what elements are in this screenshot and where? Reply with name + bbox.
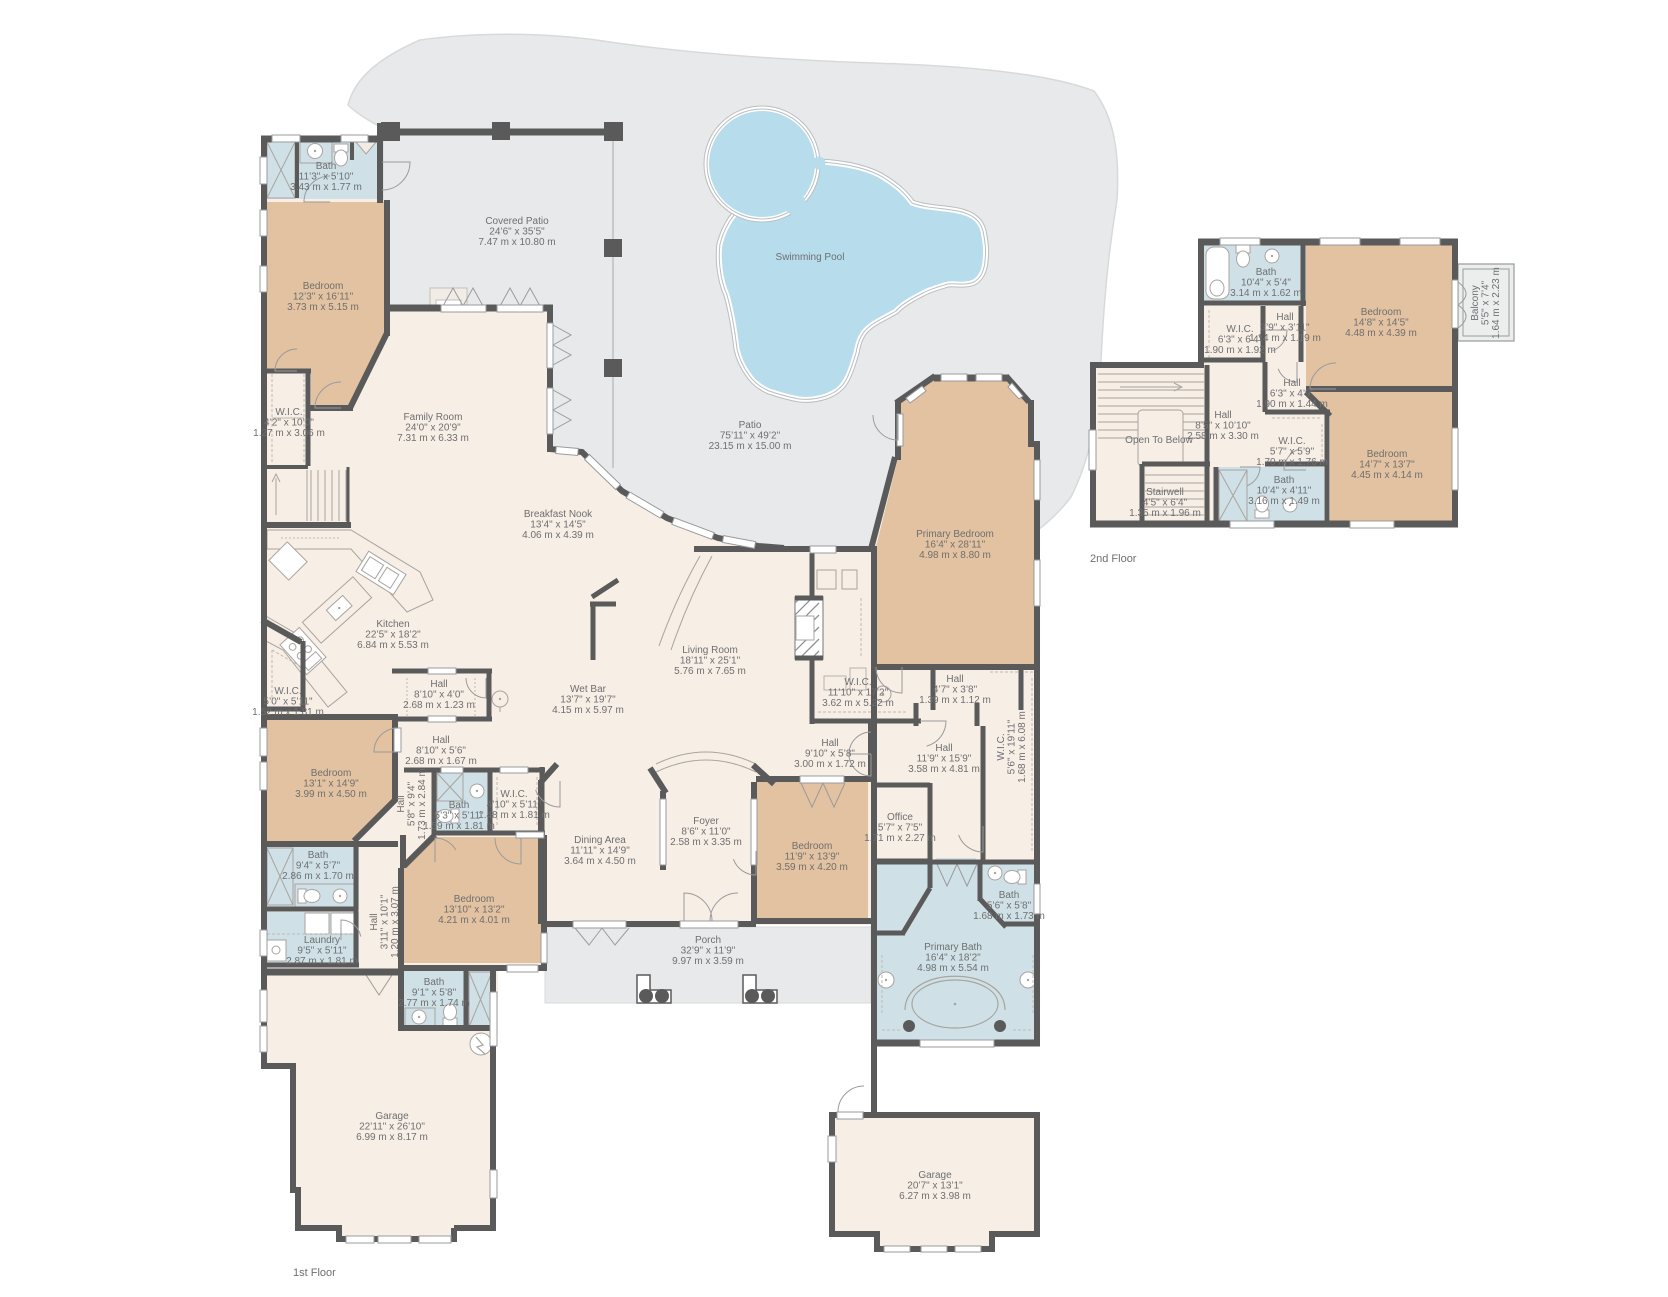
svg-text:8’10" x 4’0": 8’10" x 4’0" <box>414 690 464 701</box>
svg-text:Laundry: Laundry <box>304 935 340 946</box>
svg-text:1.70 m x 1.76 m: 1.70 m x 1.76 m <box>1256 457 1328 468</box>
svg-text:Bath: Bath <box>424 977 445 988</box>
svg-text:1.27 m x 3.06 m: 1.27 m x 3.06 m <box>253 428 325 439</box>
svg-text:3.99 m x 4.50 m: 3.99 m x 4.50 m <box>295 789 367 800</box>
svg-text:1.68 m x 1.73 m: 1.68 m x 1.73 m <box>973 911 1045 922</box>
svg-text:6’3" x 4’9": 6’3" x 4’9" <box>1270 389 1315 400</box>
svg-text:4’7" x 3’8": 4’7" x 3’8" <box>933 685 978 696</box>
svg-text:8’10" x 5’6": 8’10" x 5’6" <box>416 746 466 757</box>
svg-text:1.39 m x 1.12 m: 1.39 m x 1.12 m <box>919 695 991 706</box>
svg-text:12’3" x 16’11": 12’3" x 16’11" <box>293 292 354 303</box>
svg-text:Bath: Bath <box>308 850 329 861</box>
svg-text:1.90 m x 1.44 m: 1.90 m x 1.44 m <box>1256 399 1328 410</box>
svg-text:Primary Bedroom: Primary Bedroom <box>916 529 994 540</box>
svg-text:Swimming Pool: Swimming Pool <box>776 252 845 263</box>
svg-text:1st Floor: 1st Floor <box>293 1267 336 1279</box>
svg-text:1.52 m x 1.81 m: 1.52 m x 1.81 m <box>252 707 324 718</box>
svg-text:Bedroom: Bedroom <box>792 841 833 852</box>
svg-text:4.48 m x 4.39 m: 4.48 m x 4.39 m <box>1345 328 1417 339</box>
svg-text:Hall: Hall <box>821 738 838 749</box>
svg-text:22’5" x 18’2": 22’5" x 18’2" <box>365 630 421 641</box>
svg-text:W.I.C.: W.I.C. <box>844 677 871 688</box>
svg-text:11’11" x 14’9": 11’11" x 14’9" <box>570 846 630 857</box>
svg-text:Hall: Hall <box>432 735 449 746</box>
svg-text:75’11" x 49’2": 75’11" x 49’2" <box>720 431 781 442</box>
svg-text:Breakfast Nook: Breakfast Nook <box>524 509 593 520</box>
svg-text:4.45 m x 4.14 m: 4.45 m x 4.14 m <box>1351 470 1423 481</box>
svg-text:5’8" x 9’4": 5’8" x 9’4" <box>407 781 418 826</box>
svg-text:13’4" x 14’5": 13’4" x 14’5" <box>530 520 586 531</box>
svg-text:1.68 m x 6.08 m: 1.68 m x 6.08 m <box>1017 711 1028 783</box>
svg-text:2.58 m x 3.35 m: 2.58 m x 3.35 m <box>670 837 742 848</box>
svg-text:Bath: Bath <box>316 161 337 172</box>
svg-text:Hall: Hall <box>1283 378 1300 389</box>
svg-text:Office: Office <box>887 812 913 823</box>
svg-text:8’6" x 11’0": 8’6" x 11’0" <box>681 827 731 838</box>
svg-text:7.47 m x 10.80 m: 7.47 m x 10.80 m <box>478 237 555 248</box>
svg-text:11’9" x 13’9": 11’9" x 13’9" <box>785 852 840 863</box>
svg-text:32’9" x 11’9": 32’9" x 11’9" <box>681 946 736 957</box>
svg-text:1.64 m x 2.23 m: 1.64 m x 2.23 m <box>1491 267 1502 339</box>
svg-text:Kitchen: Kitchen <box>376 619 409 630</box>
svg-text:2.58 m x 3.30 m: 2.58 m x 3.30 m <box>1187 431 1259 442</box>
svg-text:9.97 m x 3.59 m: 9.97 m x 3.59 m <box>672 956 744 967</box>
svg-text:4’5" x 6’4": 4’5" x 6’4" <box>1143 498 1188 509</box>
svg-text:16’4" x 28’11": 16’4" x 28’11" <box>925 540 986 551</box>
svg-text:3.64 m x 4.50 m: 3.64 m x 4.50 m <box>564 856 636 867</box>
svg-text:8’5" x 10’10": 8’5" x 10’10" <box>1195 421 1251 432</box>
svg-text:Porch: Porch <box>695 935 721 946</box>
svg-text:Patio: Patio <box>739 420 762 431</box>
svg-text:4.98 m x 5.54 m: 4.98 m x 5.54 m <box>917 963 989 974</box>
svg-text:1.14 m x 1.19 m: 1.14 m x 1.19 m <box>1249 333 1321 344</box>
svg-text:1.48 m x 1.81 m: 1.48 m x 1.81 m <box>478 810 550 821</box>
svg-text:Bedroom: Bedroom <box>1367 449 1408 460</box>
svg-text:Dining Area: Dining Area <box>574 835 626 846</box>
svg-text:10’4" x 5’4": 10’4" x 5’4" <box>1241 278 1291 289</box>
svg-text:14’8" x 14’5": 14’8" x 14’5" <box>1353 318 1409 329</box>
svg-text:5.76 m x 7.65 m: 5.76 m x 7.65 m <box>674 666 746 677</box>
svg-text:Bedroom: Bedroom <box>311 768 352 779</box>
svg-text:18’11" x 25’1": 18’11" x 25’1" <box>680 656 741 667</box>
svg-text:13’1" x 14’9": 13’1" x 14’9" <box>303 779 359 790</box>
svg-text:Hall: Hall <box>430 679 447 690</box>
svg-text:9’5" x 5’11": 9’5" x 5’11" <box>297 946 347 957</box>
svg-text:6.99 m x 8.17 m: 6.99 m x 8.17 m <box>356 1132 428 1143</box>
svg-text:3.14 m x 1.62 m: 3.14 m x 1.62 m <box>1230 288 1302 299</box>
svg-text:23.15 m x 15.00 m: 23.15 m x 15.00 m <box>709 441 792 452</box>
svg-text:14’7" x 13’7": 14’7" x 13’7" <box>1359 460 1415 471</box>
svg-text:4’10" x 5’11": 4’10" x 5’11" <box>487 800 542 811</box>
svg-text:Hall: Hall <box>946 674 963 685</box>
svg-text:4’2" x 10’0": 4’2" x 10’0" <box>264 418 314 429</box>
svg-text:1.35 m x 1.96 m: 1.35 m x 1.96 m <box>1129 508 1201 519</box>
svg-text:10’4" x 4’11": 10’4" x 4’11" <box>1257 486 1312 497</box>
svg-text:2.68 m x 1.67 m: 2.68 m x 1.67 m <box>405 756 477 767</box>
svg-text:W.I.C.: W.I.C. <box>500 789 527 800</box>
svg-text:1.90 m x 1.92 m: 1.90 m x 1.92 m <box>1204 345 1276 356</box>
svg-text:1.59 m x 1.81 m: 1.59 m x 1.81 m <box>423 821 495 832</box>
svg-text:13’7" x 19’7": 13’7" x 19’7" <box>560 695 616 706</box>
svg-text:2.68 m x 1.23 m: 2.68 m x 1.23 m <box>403 700 475 711</box>
svg-text:Bath: Bath <box>1274 475 1295 486</box>
svg-text:6.84 m x 5.53 m: 6.84 m x 5.53 m <box>357 640 429 651</box>
svg-text:11’3" x 5’10": 11’3" x 5’10" <box>299 172 354 183</box>
svg-text:Bedroom: Bedroom <box>1361 307 1402 318</box>
svg-text:9’10" x 5’8": 9’10" x 5’8" <box>805 749 855 760</box>
svg-text:5’7" x 5’9": 5’7" x 5’9" <box>1270 447 1315 458</box>
svg-text:Hall: Hall <box>935 743 952 754</box>
svg-text:2.86 m x 1.70 m: 2.86 m x 1.70 m <box>282 871 354 882</box>
svg-text:Family Room: Family Room <box>404 412 463 423</box>
svg-text:11’9" x 15’9": 11’9" x 15’9" <box>917 754 972 765</box>
svg-text:22’11" x 26’10": 22’11" x 26’10" <box>359 1122 425 1133</box>
svg-text:Hall: Hall <box>1276 312 1293 323</box>
svg-text:11’10" x 17’2": 11’10" x 17’2" <box>828 688 889 699</box>
svg-text:Covered Patio: Covered Patio <box>485 216 549 227</box>
svg-text:Balcony: Balcony <box>1470 285 1481 321</box>
svg-text:4.15 m x 5.97 m: 4.15 m x 5.97 m <box>552 705 624 716</box>
svg-text:Garage: Garage <box>375 1111 409 1122</box>
svg-text:16’4" x 18’2": 16’4" x 18’2" <box>925 953 981 964</box>
svg-text:Garage: Garage <box>918 1170 952 1181</box>
svg-text:Bedroom: Bedroom <box>454 894 495 905</box>
svg-text:3.62 m x 5.22 m: 3.62 m x 5.22 m <box>822 698 894 709</box>
svg-text:3.43 m x 1.77 m: 3.43 m x 1.77 m <box>290 182 362 193</box>
svg-text:13’10" x 13’2": 13’10" x 13’2" <box>443 905 504 916</box>
svg-text:Primary Bath: Primary Bath <box>924 942 982 953</box>
svg-text:Stairwell: Stairwell <box>1146 487 1184 498</box>
svg-text:3.59 m x 4.20 m: 3.59 m x 4.20 m <box>776 862 848 873</box>
svg-text:5’6" x 19’11": 5’6" x 19’11" <box>1007 719 1018 774</box>
svg-text:4.06 m x 4.39 m: 4.06 m x 4.39 m <box>522 530 594 541</box>
svg-text:4.21 m x 4.01 m: 4.21 m x 4.01 m <box>438 915 510 926</box>
svg-text:2.87 m x 1.81 m: 2.87 m x 1.81 m <box>286 956 358 967</box>
svg-text:W.I.C.: W.I.C. <box>274 686 301 697</box>
svg-text:W.I.C.: W.I.C. <box>996 733 1007 760</box>
svg-text:9’4" x 5’7": 9’4" x 5’7" <box>296 861 341 872</box>
svg-text:1.71 m x 2.27 m: 1.71 m x 2.27 m <box>864 833 936 844</box>
svg-text:W.I.C.: W.I.C. <box>1278 436 1305 447</box>
svg-text:5’6" x 5’8": 5’6" x 5’8" <box>987 901 1032 912</box>
svg-text:Open To Below: Open To Below <box>1125 435 1193 446</box>
svg-text:Living Room: Living Room <box>682 645 738 656</box>
svg-text:5’3" x 5’11": 5’3" x 5’11" <box>434 811 484 822</box>
svg-text:Wet Bar: Wet Bar <box>570 684 607 695</box>
svg-text:1.20 m x 3.07 m: 1.20 m x 3.07 m <box>390 886 401 958</box>
svg-text:Bath: Bath <box>1256 267 1277 278</box>
svg-text:5’0" x 5’11": 5’0" x 5’11" <box>263 697 313 708</box>
svg-text:W.I.C.: W.I.C. <box>275 407 302 418</box>
svg-text:20’7" x 13’1": 20’7" x 13’1" <box>907 1181 963 1192</box>
svg-text:24’0" x 20’9": 24’0" x 20’9" <box>405 423 461 434</box>
svg-text:Foyer: Foyer <box>693 816 719 827</box>
svg-text:3.16 m x 1.49 m: 3.16 m x 1.49 m <box>1248 496 1320 507</box>
svg-text:5’5" x 7’4": 5’5" x 7’4" <box>1481 280 1492 325</box>
svg-text:Hall: Hall <box>1214 410 1231 421</box>
svg-text:3’9" x 3’11": 3’9" x 3’11" <box>1260 323 1310 334</box>
svg-text:4.98 m x 8.80 m: 4.98 m x 8.80 m <box>919 550 991 561</box>
svg-text:Hall: Hall <box>396 795 407 812</box>
svg-text:3.00 m x 1.72 m: 3.00 m x 1.72 m <box>794 759 866 770</box>
svg-text:Bath: Bath <box>999 890 1020 901</box>
svg-text:2.77 m x 1.74 m: 2.77 m x 1.74 m <box>398 998 470 1009</box>
svg-text:Bath: Bath <box>449 800 470 811</box>
svg-text:9’1" x 5’8": 9’1" x 5’8" <box>412 988 457 999</box>
svg-text:3.58 m x 4.81 m: 3.58 m x 4.81 m <box>908 764 980 775</box>
svg-text:3.73 m x 5.15 m: 3.73 m x 5.15 m <box>287 302 359 313</box>
svg-text:7.31 m x 6.33 m: 7.31 m x 6.33 m <box>397 433 469 444</box>
svg-text:6.27 m x 3.98 m: 6.27 m x 3.98 m <box>899 1191 971 1202</box>
svg-text:2nd Floor: 2nd Floor <box>1090 553 1137 565</box>
svg-text:Hall: Hall <box>369 913 380 930</box>
svg-text:24’6" x 35’5": 24’6" x 35’5" <box>489 227 545 238</box>
svg-text:5’7" x 7’5": 5’7" x 7’5" <box>878 823 923 834</box>
svg-text:3’11" x 10’1": 3’11" x 10’1" <box>380 894 391 949</box>
svg-text:Bedroom: Bedroom <box>303 281 344 292</box>
